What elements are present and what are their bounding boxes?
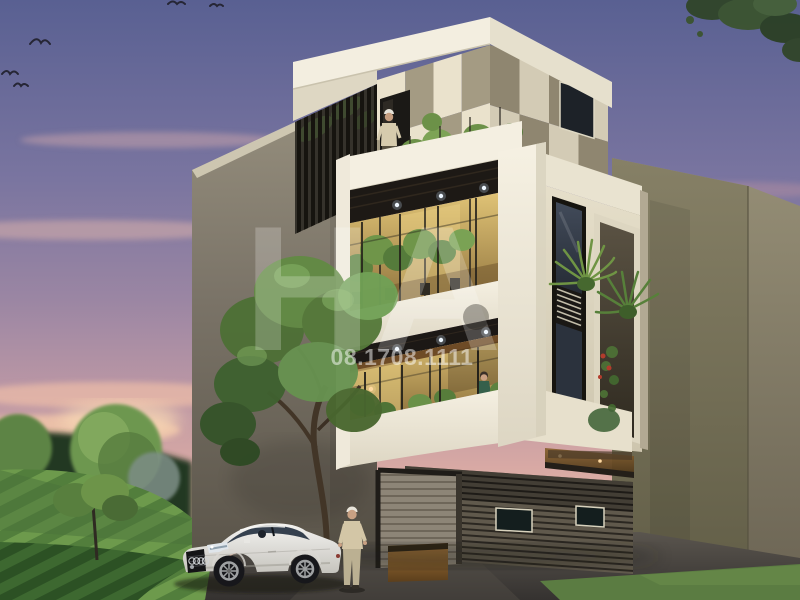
head: [347, 510, 356, 519]
watermark-dot-icon: [463, 304, 489, 330]
scene-canvas: [0, 0, 800, 600]
fog-light: [190, 565, 194, 569]
ground-window-1: [496, 508, 532, 532]
door-handle: [268, 552, 276, 553]
car-shadow: [174, 575, 350, 593]
rear-wheel: [291, 555, 320, 584]
corner-pillar: [498, 142, 546, 447]
ground-window-2: [576, 506, 604, 527]
neighbor-block-b: [748, 186, 800, 565]
architectural-render: HA 08.1708.1111: [0, 0, 800, 600]
taillight: [336, 554, 340, 558]
front-wheel: [214, 556, 245, 587]
